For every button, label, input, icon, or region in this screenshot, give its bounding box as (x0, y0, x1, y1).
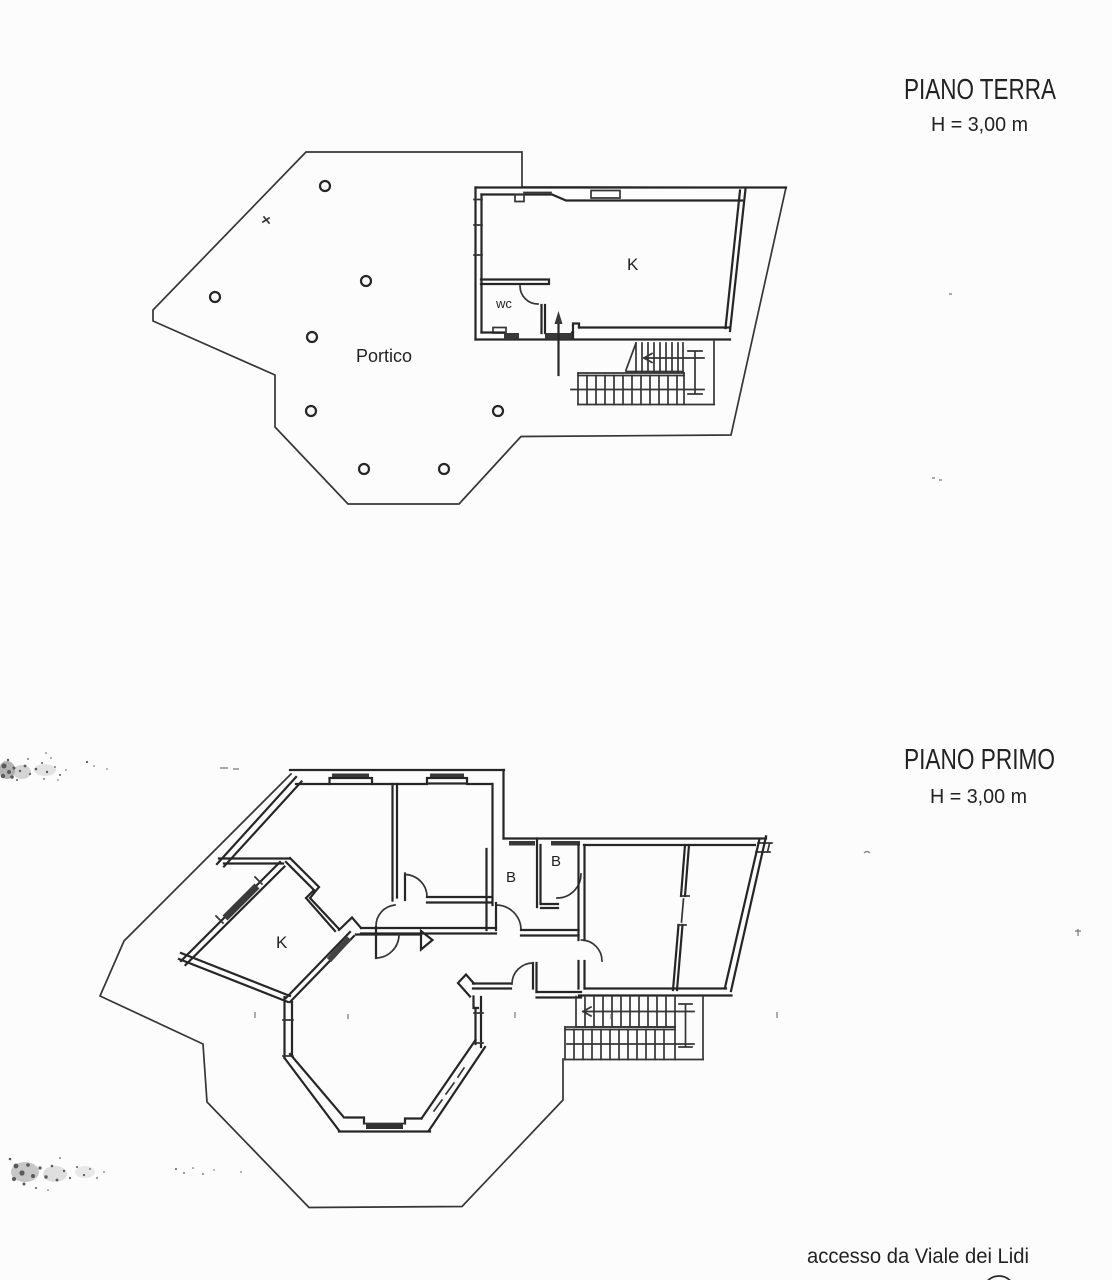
svg-text:H = 3,00 m: H = 3,00 m (931, 114, 1028, 136)
svg-text:H = 3,00 m: H = 3,00 m (930, 786, 1027, 808)
svg-text:Portico: Portico (356, 346, 412, 366)
svg-text:PIANO TERRA: PIANO TERRA (904, 74, 1057, 106)
svg-text:PIANO PRIMO: PIANO PRIMO (904, 744, 1055, 776)
svg-text:K: K (627, 255, 639, 274)
svg-text:K: K (276, 933, 288, 952)
svg-text:B: B (506, 869, 516, 886)
svg-text:B: B (551, 853, 561, 870)
svg-text:accesso da Viale dei Lidi: accesso da Viale dei Lidi (807, 1245, 1029, 1268)
svg-text:wc: wc (495, 296, 512, 311)
